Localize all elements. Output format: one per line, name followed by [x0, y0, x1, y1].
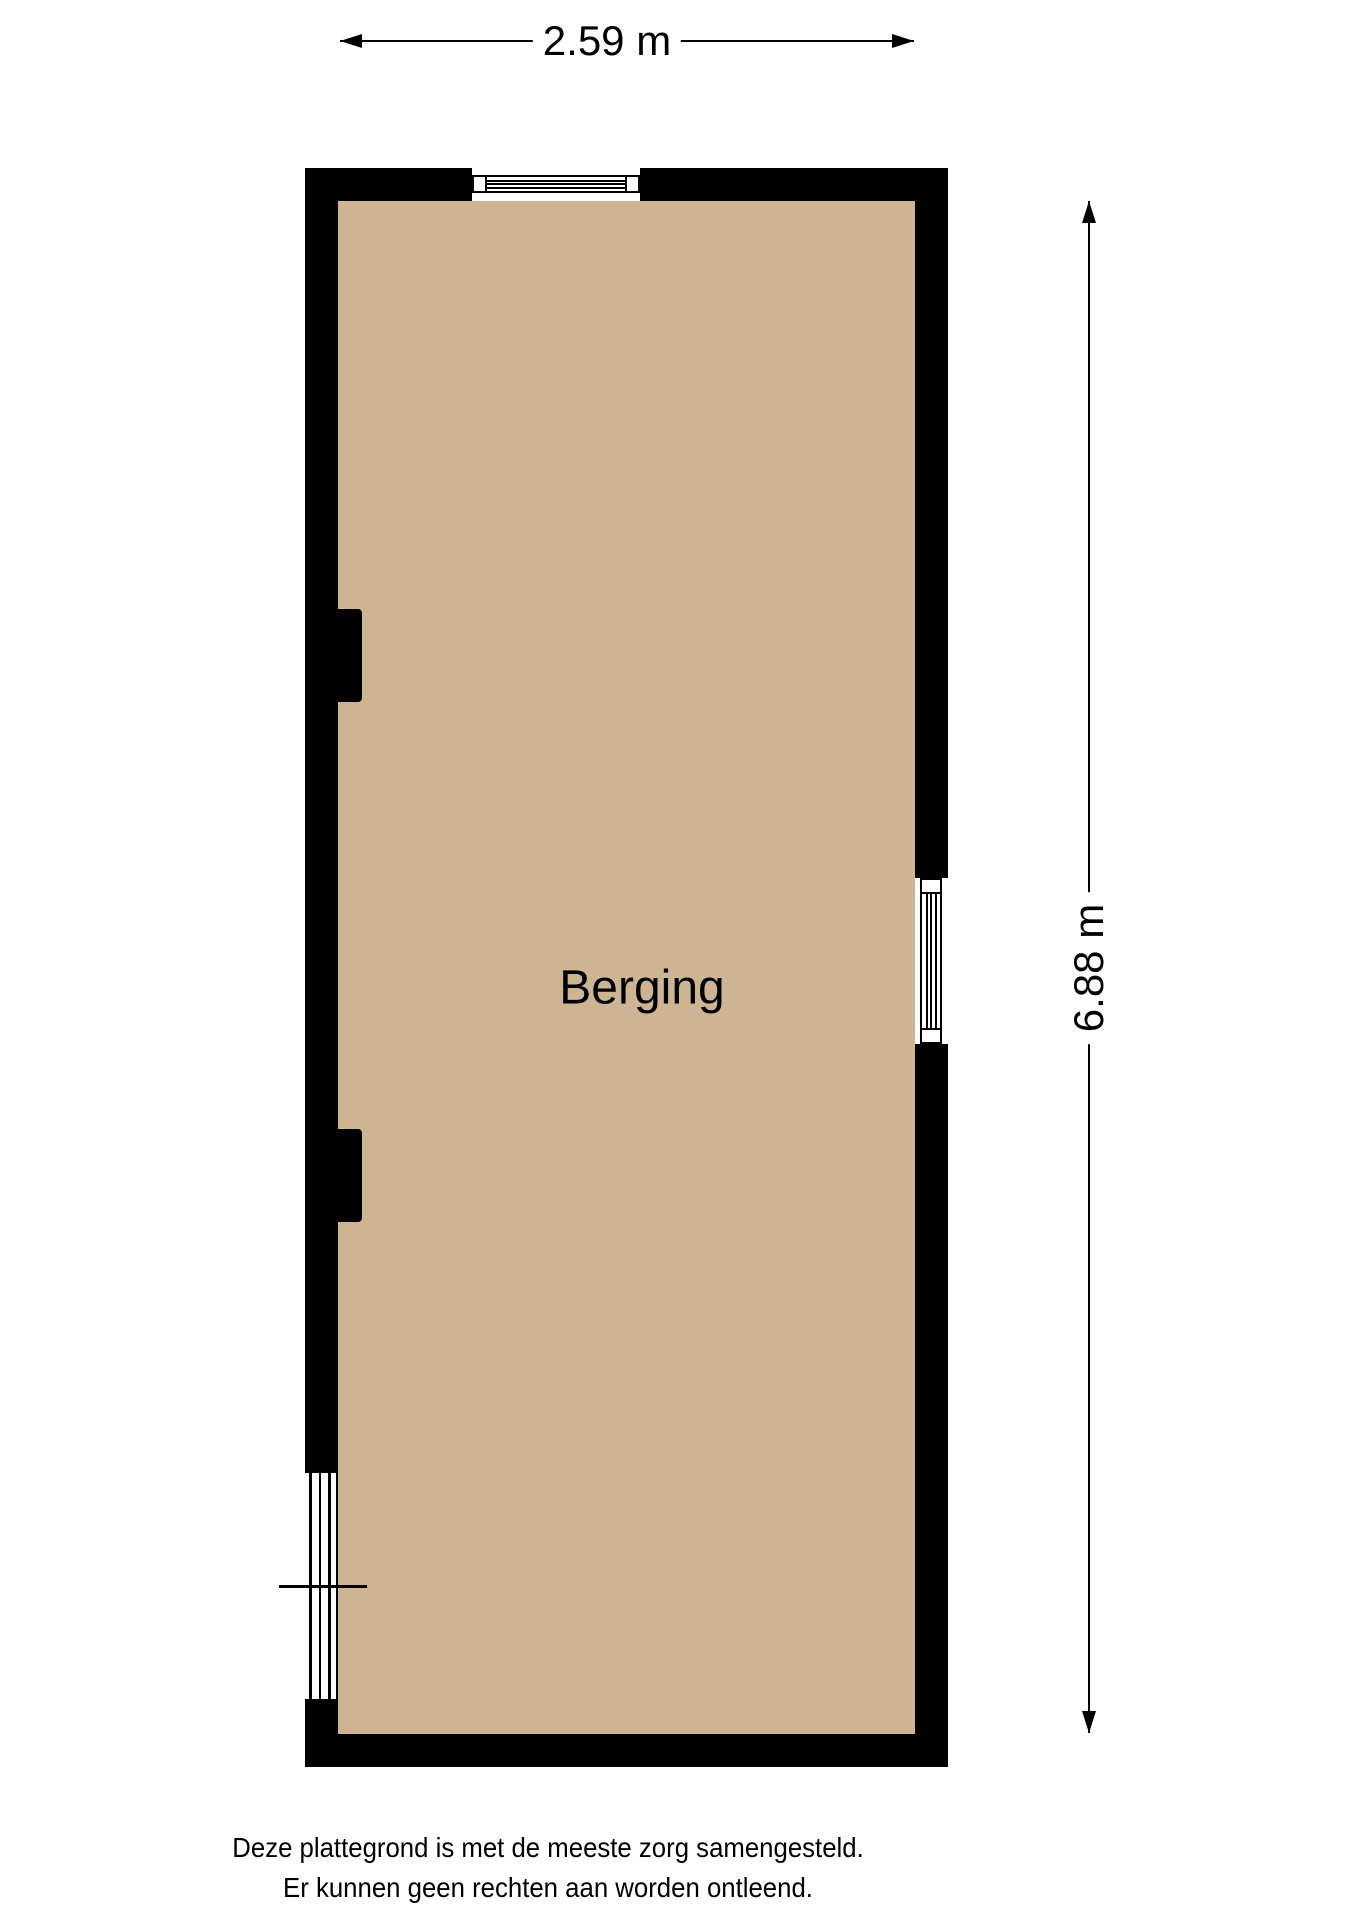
room-label: Berging	[559, 961, 724, 1016]
glazing-line	[926, 894, 928, 1028]
window-frame-end	[474, 177, 487, 191]
wall-stub-upper	[338, 609, 362, 702]
glazing-line	[935, 894, 937, 1028]
glazing-line	[487, 180, 625, 182]
dimension-width-label: 2.59 m	[533, 17, 681, 65]
window-top-opening	[472, 168, 640, 201]
window-glazing	[922, 894, 940, 1028]
glazing-line	[487, 187, 625, 189]
arrow-right-icon	[892, 34, 914, 48]
glazing-line	[930, 894, 932, 1028]
arrow-up-icon	[1082, 201, 1096, 223]
window-right-icon	[920, 878, 942, 1044]
window-top-icon	[472, 175, 640, 193]
disclaimer-line-1: Deze plattegrond is met de meeste zorg s…	[232, 1828, 863, 1868]
disclaimer: Deze plattegrond is met de meeste zorg s…	[232, 1828, 863, 1908]
glazing-line	[487, 183, 625, 185]
room-walls: Berging	[305, 168, 948, 1767]
floorplan-canvas: 2.59 m 6.88 m	[0, 0, 1358, 1920]
window-frame-end	[922, 880, 940, 894]
disclaimer-line-2: Er kunnen geen rechten aan worden ontlee…	[232, 1868, 863, 1908]
door-divider-line	[279, 1585, 367, 1588]
window-frame-end	[922, 1028, 940, 1042]
window-right-opening	[915, 878, 948, 1044]
arrow-left-icon	[340, 34, 362, 48]
arrow-down-icon	[1082, 1711, 1096, 1733]
window-glazing	[487, 177, 625, 191]
window-frame-end	[625, 177, 638, 191]
wall-stub-lower	[338, 1129, 362, 1222]
dimension-height-label: 6.88 m	[1065, 892, 1113, 1044]
